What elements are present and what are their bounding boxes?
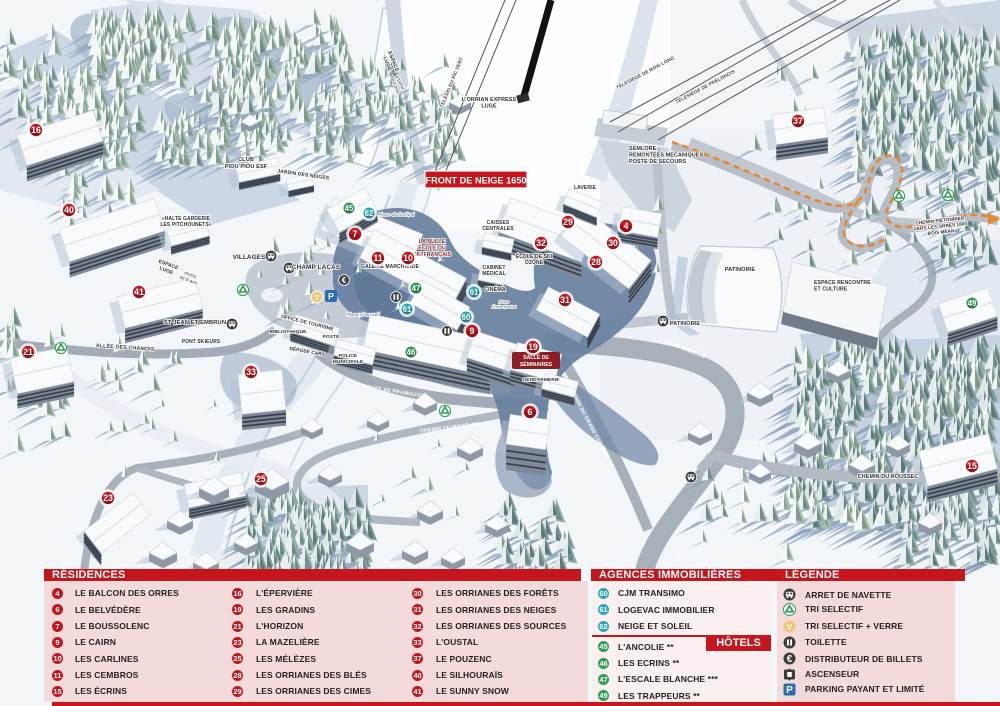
svg-text:11: 11 xyxy=(373,253,382,263)
svg-text:BIBLIOTHèQUE: BIBLIOTHèQUE xyxy=(270,329,308,335)
svg-text:SALLE DE: SALLE DE xyxy=(523,355,549,361)
svg-text:POSTE: POSTE xyxy=(323,334,340,340)
svg-text:9: 9 xyxy=(470,326,475,336)
svg-text:21: 21 xyxy=(23,347,33,357)
svg-text:«HALTE GARDERIELES PITCHOUNETS: «HALTE GARDERIELES PITCHOUNETS» xyxy=(160,216,211,228)
svg-text:P: P xyxy=(786,685,793,696)
svg-text:62: 62 xyxy=(365,209,374,218)
svg-text:25: 25 xyxy=(256,474,266,484)
svg-text:€: € xyxy=(787,654,793,665)
svg-text:GENDARMERIE: GENDARMERIE xyxy=(522,377,560,383)
svg-text:4: 4 xyxy=(624,221,629,231)
svg-text:P: P xyxy=(328,292,334,302)
svg-text:41: 41 xyxy=(134,287,144,297)
svg-text:VILLAGES: VILLAGES xyxy=(233,254,266,261)
svg-text:31: 31 xyxy=(560,295,570,305)
svg-text:PATINOIRE: PATINOIRE xyxy=(725,267,756,273)
svg-text:CABINETMÉDICAL: CABINETMÉDICAL xyxy=(482,265,505,277)
svg-text:45: 45 xyxy=(345,204,354,213)
svg-text:49: 49 xyxy=(968,299,977,308)
svg-text:19: 19 xyxy=(528,342,538,352)
svg-text:FRONT DE NEIGE 1650: FRONT DE NEIGE 1650 xyxy=(425,176,526,186)
svg-text:CINÉMA: CINÉMA xyxy=(484,285,506,293)
svg-text:ST JEAN ET EMBRUN: ST JEAN ET EMBRUN xyxy=(164,320,226,326)
svg-text:61: 61 xyxy=(403,305,412,314)
svg-text:7: 7 xyxy=(353,229,358,239)
svg-text:SÉMINAIRES: SÉMINAIRES xyxy=(520,360,553,368)
svg-text:61: 61 xyxy=(470,288,479,297)
svg-text:30: 30 xyxy=(608,238,618,248)
svg-text:CHEMIN DU ROUSSEC: CHEMIN DU ROUSSEC xyxy=(858,474,918,480)
svg-text:LAVERIE: LAVERIE xyxy=(574,185,597,191)
svg-text:32: 32 xyxy=(536,238,546,248)
svg-text:47: 47 xyxy=(412,284,421,293)
svg-text:PATINOIRE: PATINOIRE xyxy=(670,321,701,327)
svg-text:€: € xyxy=(342,276,347,285)
svg-text:CHAMP LACAS: CHAMP LACAS xyxy=(292,264,341,271)
svg-text:6: 6 xyxy=(528,407,533,417)
svg-text:46: 46 xyxy=(407,348,416,357)
svg-text:23: 23 xyxy=(103,493,113,503)
svg-text:60: 60 xyxy=(462,313,471,322)
svg-text:10: 10 xyxy=(403,253,413,263)
svg-text:40: 40 xyxy=(64,205,74,215)
svg-text:16: 16 xyxy=(31,125,41,135)
svg-text:33: 33 xyxy=(246,367,256,377)
svg-text:PONT SKIEURS: PONT SKIEURS xyxy=(182,339,221,345)
svg-text:37: 37 xyxy=(793,116,803,126)
svg-text:28: 28 xyxy=(591,257,601,267)
svg-text:Place d'accueil: Place d'accueil xyxy=(346,312,380,318)
svg-text:Place du festival: Place du festival xyxy=(378,212,415,218)
svg-text:15: 15 xyxy=(967,461,977,471)
svg-text:29: 29 xyxy=(563,217,573,227)
